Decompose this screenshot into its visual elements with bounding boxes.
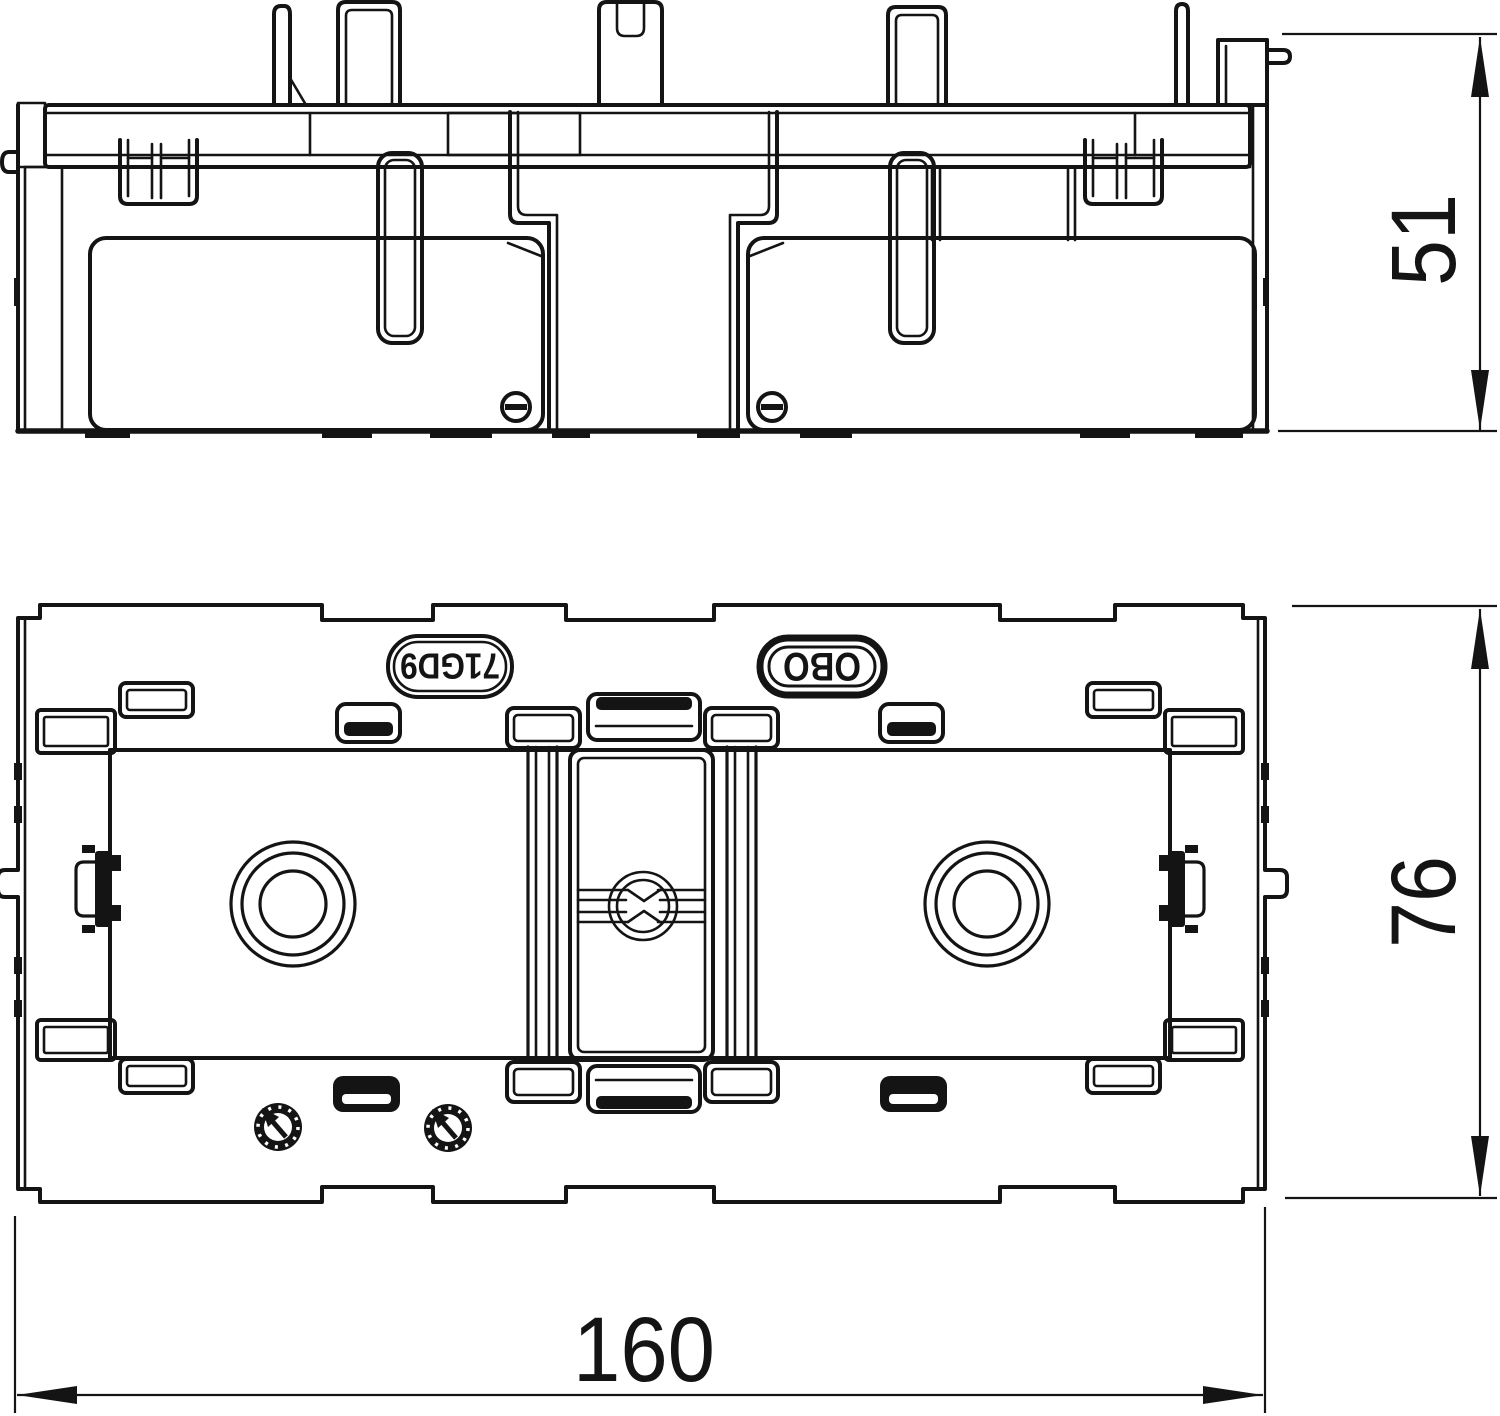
latch-tab-2-inner bbox=[896, 15, 938, 105]
dim-51-text: 51 bbox=[1373, 194, 1475, 286]
cover-left bbox=[90, 238, 543, 430]
plan-edge-nubs bbox=[14, 763, 1269, 1017]
cover-right bbox=[748, 238, 1255, 430]
edge-nub-right bbox=[1263, 278, 1269, 306]
product-code-text: 71GD9 bbox=[400, 646, 500, 687]
center-tab-notch bbox=[617, 2, 644, 36]
latch-tab-inner bbox=[346, 10, 392, 105]
center-assembly bbox=[507, 694, 778, 1112]
center-crossbars bbox=[578, 890, 705, 922]
slot-left-inner bbox=[385, 160, 415, 336]
dim-76-text: 76 bbox=[1373, 856, 1475, 948]
center-clips-bottom bbox=[507, 1062, 778, 1112]
cover-screw-right bbox=[758, 393, 786, 421]
center-clips-top bbox=[507, 694, 778, 748]
knockout-left bbox=[231, 842, 355, 966]
product-code-label: 71GD9 bbox=[388, 636, 512, 697]
technical-drawing-svg: 71GD9 OBO bbox=[0, 0, 1500, 1416]
brand-logo: OBO bbox=[760, 638, 884, 695]
dimension-76: 76 bbox=[1285, 606, 1497, 1198]
device-frame bbox=[110, 750, 1170, 1058]
mounting-flange bbox=[18, 103, 1250, 167]
corner-clips-right bbox=[880, 683, 1243, 1112]
u-clip-left bbox=[120, 140, 197, 204]
center-tab bbox=[599, 2, 662, 105]
center-rails bbox=[528, 747, 756, 1062]
center-circle-outer bbox=[609, 872, 677, 940]
side-view bbox=[2, 2, 1290, 438]
pin-tab bbox=[274, 6, 290, 105]
plan-view: 71GD9 OBO bbox=[0, 605, 1287, 1202]
side-pin-left bbox=[2, 152, 18, 172]
center-frame-inner bbox=[578, 758, 705, 1052]
u-clip-right bbox=[1085, 140, 1162, 204]
covers bbox=[90, 238, 1255, 430]
side-latch-left bbox=[76, 845, 121, 933]
dim-160-text: 160 bbox=[573, 1299, 715, 1401]
quick-fix-screw-left bbox=[254, 1103, 302, 1151]
dimension-160: 160 bbox=[15, 1207, 1265, 1413]
slot-right-inner bbox=[897, 160, 927, 336]
dimension-51: 51 bbox=[1278, 34, 1497, 431]
side-latch-right bbox=[1159, 845, 1204, 933]
center-channel bbox=[510, 112, 777, 428]
brand-text: OBO bbox=[783, 644, 861, 688]
body-outline bbox=[14, 40, 1269, 431]
center-circle-inner bbox=[617, 880, 669, 932]
center-frame bbox=[570, 750, 713, 1060]
cover-screw-left bbox=[502, 393, 530, 421]
side-pin-right bbox=[1267, 50, 1290, 63]
quick-fix-screw-right bbox=[424, 1104, 472, 1152]
hanging-clips bbox=[120, 140, 1162, 343]
edge-nub-left bbox=[14, 278, 20, 306]
pin-tab-right bbox=[1176, 4, 1188, 105]
pin-foot bbox=[290, 78, 306, 105]
drawing-canvas: 71GD9 OBO bbox=[0, 0, 1500, 1416]
knockout-right bbox=[925, 842, 1049, 966]
corner-clips-left bbox=[37, 683, 400, 1112]
